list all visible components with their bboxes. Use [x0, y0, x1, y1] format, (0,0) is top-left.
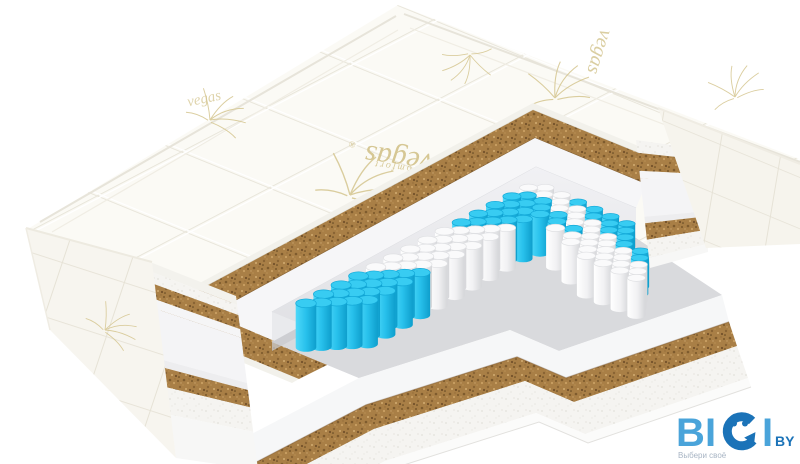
logo-suffix: BY — [775, 433, 795, 449]
logo-letter-i2: I — [762, 411, 773, 455]
pocket-spring-cyan — [296, 299, 317, 352]
logo-tagline: Выбери своё — [678, 451, 727, 460]
logo-letter-i1: I — [705, 411, 716, 455]
logo-letter-b: B — [676, 411, 705, 455]
product-photo-mattress-cutaway: vegas ® comfort vegas vegas — [0, 0, 800, 464]
mattress-cutaway-scene: vegas ® comfort vegas vegas — [0, 0, 800, 464]
pocket-spring-white — [577, 252, 596, 298]
pocket-spring-white — [611, 267, 629, 312]
pocket-spring-white — [594, 260, 612, 306]
pocket-spring-white — [627, 274, 645, 318]
